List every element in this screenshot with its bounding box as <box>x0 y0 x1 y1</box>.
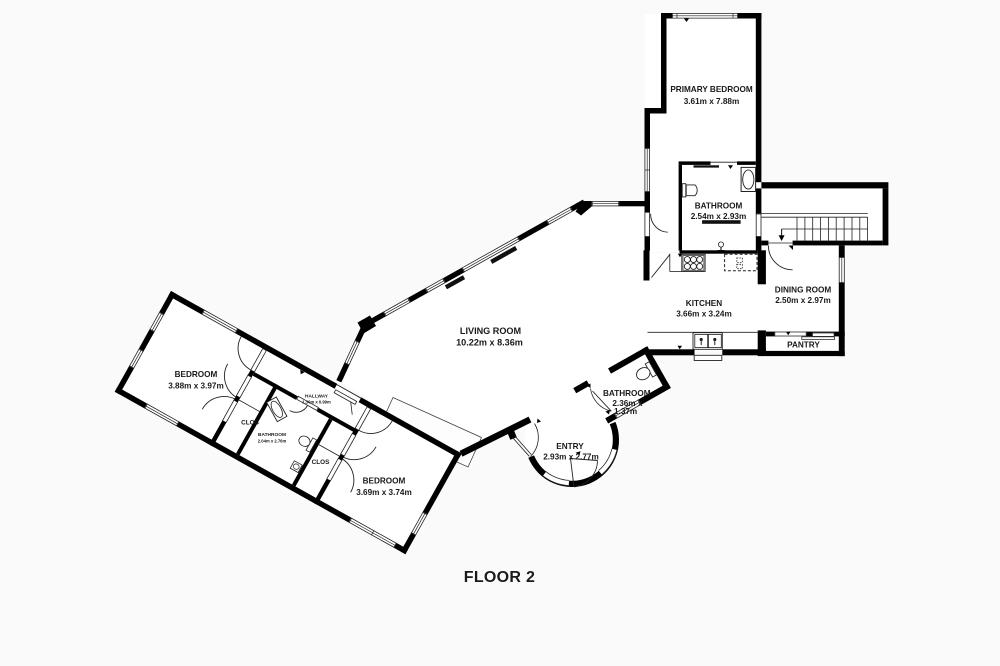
svg-text:PANTRY: PANTRY <box>787 341 820 350</box>
svg-text:BATHROOM: BATHROOM <box>695 202 743 211</box>
svg-text:BATHROOM: BATHROOM <box>603 389 651 398</box>
svg-text:DINING ROOM: DINING ROOM <box>775 286 832 295</box>
svg-text:2.54m x 2.93m: 2.54m x 2.93m <box>691 212 747 221</box>
svg-text:BATHROOM: BATHROOM <box>258 432 286 438</box>
svg-text:ENTRY: ENTRY <box>556 442 584 451</box>
svg-text:10.22m x 8.36m: 10.22m x 8.36m <box>456 338 523 348</box>
svg-text:3.66m x 3.24m: 3.66m x 3.24m <box>676 310 732 319</box>
svg-text:KITCHEN: KITCHEN <box>686 299 722 308</box>
svg-text:1.30m x 0.99m: 1.30m x 0.99m <box>302 400 331 405</box>
svg-text:3.88m x 3.97m: 3.88m x 3.97m <box>168 382 224 391</box>
svg-text:3.69m x 3.74m: 3.69m x 3.74m <box>356 488 412 497</box>
svg-text:LIVING ROOM: LIVING ROOM <box>460 326 521 336</box>
svg-text:BEDROOM: BEDROOM <box>363 477 406 486</box>
svg-text:PRIMARY BEDROOM: PRIMARY BEDROOM <box>670 85 753 94</box>
svg-text:2.93m x 2.77m: 2.93m x 2.77m <box>543 453 599 462</box>
svg-text:CLOS: CLOS <box>241 420 259 427</box>
svg-text:3.61m x 7.88m: 3.61m x 7.88m <box>684 97 740 106</box>
svg-text:CLOS: CLOS <box>312 459 330 466</box>
svg-text:FLOOR 2: FLOOR 2 <box>464 569 535 586</box>
svg-text:1.37m: 1.37m <box>614 407 637 416</box>
svg-text:2.50m x 2.97m: 2.50m x 2.97m <box>775 296 831 305</box>
svg-text:BEDROOM: BEDROOM <box>175 370 218 379</box>
svg-text:2.04m x 2.76m: 2.04m x 2.76m <box>258 439 287 444</box>
